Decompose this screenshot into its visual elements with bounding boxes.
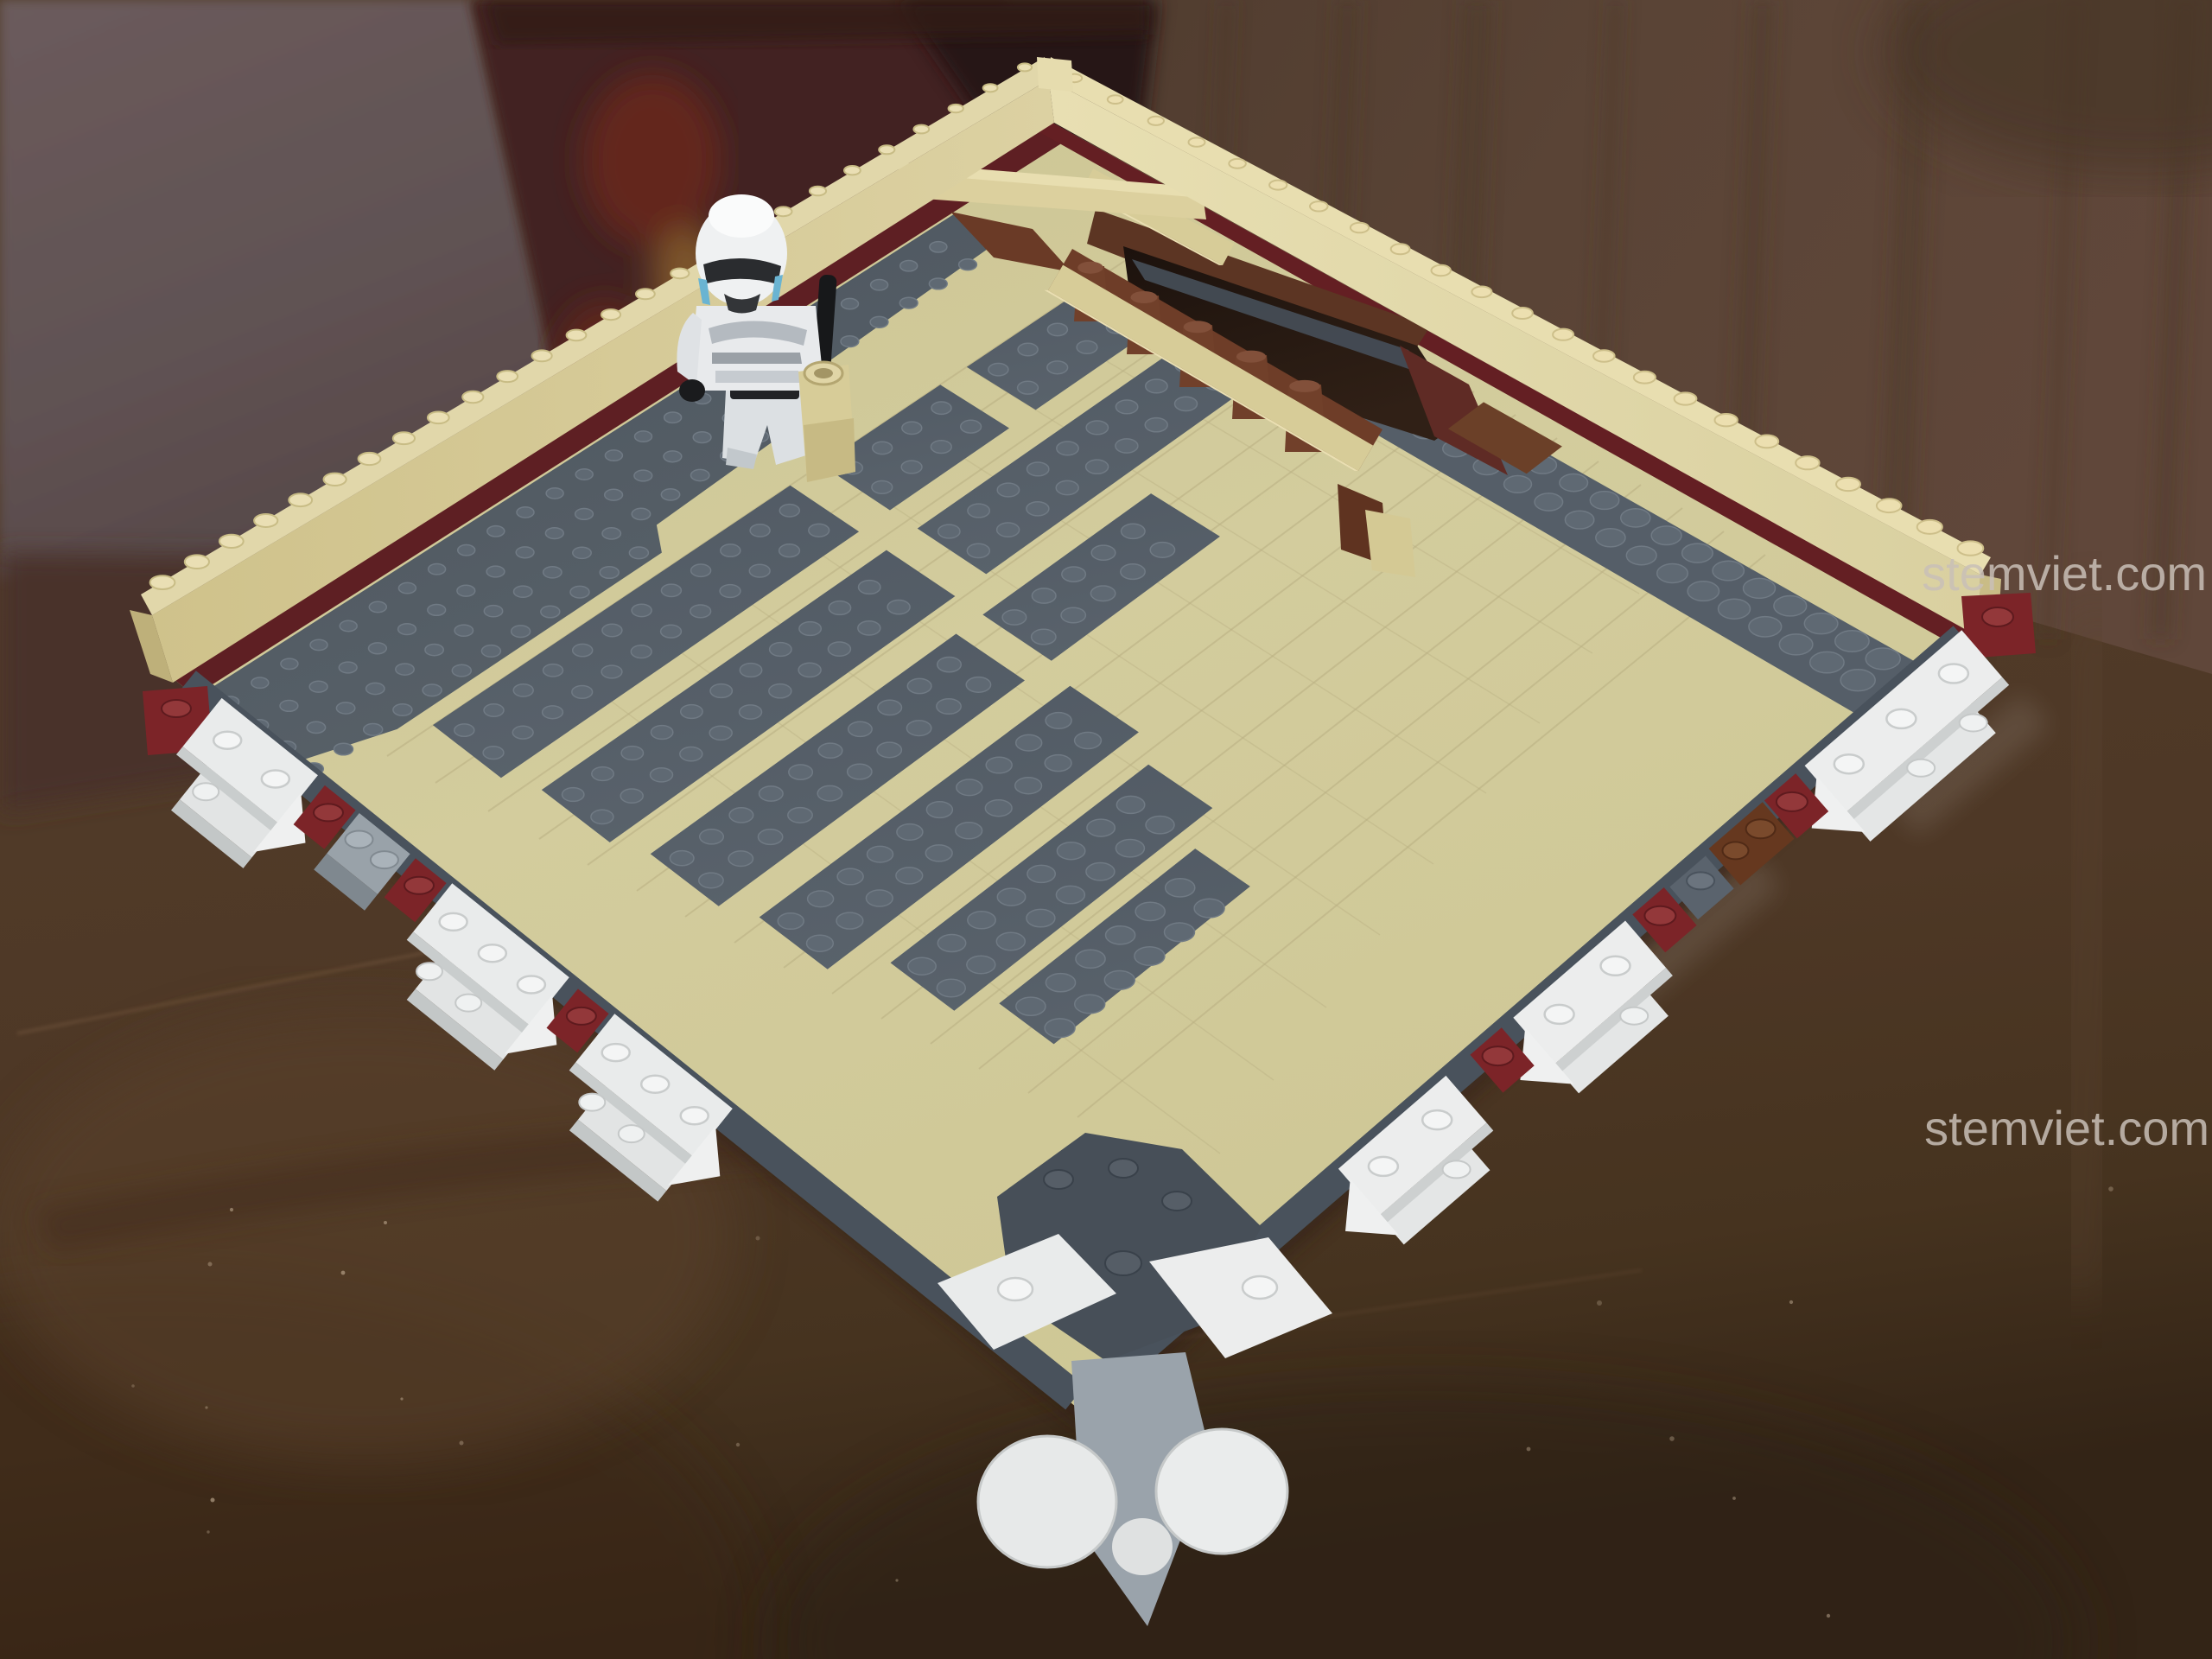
svg-text:stemviet.com: stemviet.com [1922, 546, 2207, 601]
svg-text:stemviet.com: stemviet.com [1924, 1101, 2209, 1155]
